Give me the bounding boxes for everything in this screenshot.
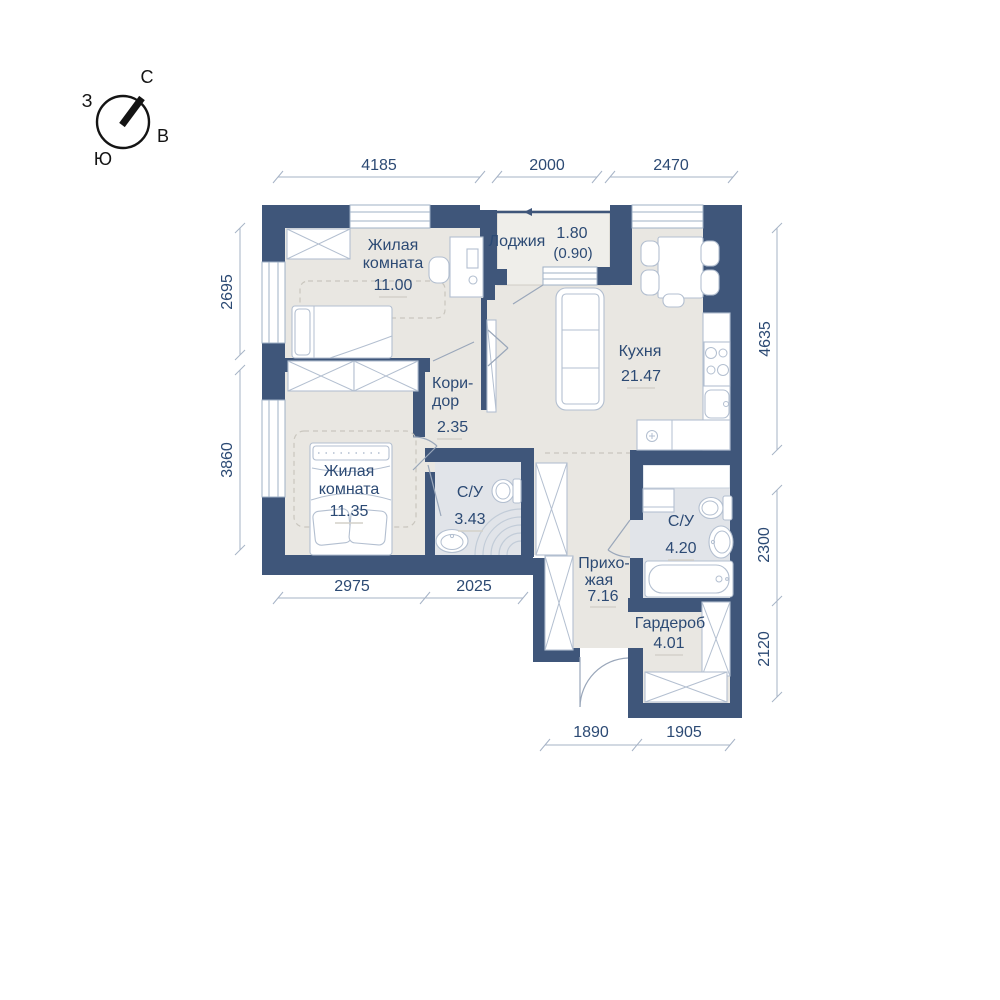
wall-tv: [481, 298, 487, 410]
chair: [641, 241, 659, 266]
wall: [533, 558, 545, 662]
dim-top-2: 2000: [529, 157, 565, 174]
compass-south-label: Ю: [94, 149, 112, 169]
kitchen-sink: [705, 390, 729, 418]
dim-top-3: 2470: [653, 157, 689, 174]
wall: [630, 450, 742, 465]
room-area-reduced: (0.90): [553, 245, 592, 262]
compass-needle-icon: [122, 98, 142, 125]
wall: [425, 448, 534, 462]
toilet-tank: [723, 496, 732, 520]
room-name: С/У: [457, 484, 484, 501]
desk-monitor: [467, 249, 478, 268]
dim-inner-bottom-2: 2025: [456, 578, 492, 595]
room-name: жая: [585, 572, 613, 589]
wall: [262, 343, 285, 400]
washing-machine: [643, 489, 674, 512]
dim-bottom-2: 1905: [666, 724, 702, 741]
wall: [703, 205, 742, 228]
room-name: Кухня: [619, 343, 662, 360]
dim-right-3: 2120: [756, 631, 773, 667]
room-area: 4.20: [665, 540, 696, 557]
room-name: Прихо-: [578, 555, 629, 572]
room-name: Лоджия: [489, 233, 546, 250]
room-area: 7.16: [587, 588, 618, 605]
room-area: 21.47: [621, 368, 661, 385]
room-area: 11.35: [330, 503, 369, 520]
chair: [663, 294, 684, 307]
dim-top-1: 4185: [361, 157, 397, 174]
door-entrance: [580, 657, 628, 707]
window-left-bedroom1: [262, 262, 285, 343]
room-name: Жилая: [324, 463, 375, 480]
dim-inner-bottom-1: 2975: [334, 578, 370, 595]
window-loggia: [543, 267, 597, 285]
dining-table: [658, 237, 703, 298]
wall: [262, 555, 533, 575]
room-name: С/У: [668, 513, 695, 530]
compass-north-label: С: [141, 67, 154, 87]
room-area: 1.80: [556, 225, 587, 242]
room-name: Гардероб: [635, 615, 705, 632]
dim-left-2: 3860: [219, 442, 236, 478]
wall: [430, 205, 480, 228]
chair: [641, 270, 659, 295]
desk-item: [469, 276, 477, 284]
desk-chair: [429, 257, 449, 283]
wall: [497, 269, 507, 285]
floor-plan-drawing: С В Ю З: [0, 0, 1000, 1000]
bed-headboard: [313, 446, 389, 460]
chair: [701, 241, 719, 266]
kitchen-counter-bottom: [637, 420, 730, 450]
room-name: Кори-: [432, 375, 473, 392]
vent-niche: [643, 465, 730, 488]
dim-right-2: 2300: [756, 527, 773, 563]
floor-plan-page: С В Ю З: [0, 0, 1000, 1000]
room-name: комната: [363, 255, 424, 272]
room-name: Жилая: [368, 237, 419, 254]
room-name: дор: [432, 393, 459, 410]
room-area: 2.35: [437, 419, 468, 436]
wall: [262, 205, 285, 262]
wall: [628, 703, 742, 718]
compass-east-label: В: [157, 126, 169, 146]
bed-pillow: [295, 309, 310, 355]
room-area: 4.01: [653, 635, 684, 652]
window-left-bedroom2: [262, 400, 285, 497]
sofa-cushions: [562, 294, 599, 404]
toilet-tank: [513, 479, 521, 503]
window-top-bedroom1: [350, 205, 430, 228]
dim-bottom-1: 1890: [573, 724, 609, 741]
room-name: комната: [319, 481, 380, 498]
compass-west-label: З: [82, 91, 93, 111]
room-area: 3.43: [454, 511, 485, 528]
compass: С В Ю З: [82, 67, 169, 169]
wall: [597, 267, 610, 285]
loggia-pillar-right: [610, 207, 632, 285]
room-area: 11.00: [374, 277, 413, 294]
door-gap-bath2: [630, 520, 643, 558]
chair: [701, 270, 719, 295]
bathtub-inner: [649, 565, 729, 593]
dim-left-1: 2695: [219, 274, 236, 310]
wall: [521, 462, 534, 557]
wall: [628, 648, 643, 708]
dim-right-1: 4635: [757, 321, 774, 357]
window-top-kitchen: [632, 205, 703, 228]
